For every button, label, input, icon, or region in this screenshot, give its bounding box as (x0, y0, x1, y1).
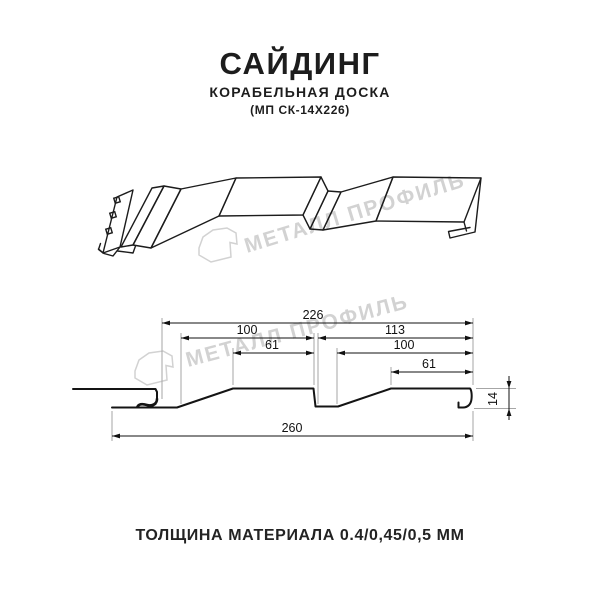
dim-label-100-left: 100 (237, 323, 258, 337)
dim-61-right: 61 (391, 357, 473, 374)
thickness-note: ТОЛЩИНА МАТЕРИАЛА 0.4/0,45/0,5 ММ (0, 527, 600, 545)
product-sheet: САЙДИНГ КОРАБЕЛЬНАЯ ДОСКА (МП СК-14Х226)… (0, 0, 600, 600)
brand-logo-icon (135, 351, 173, 385)
dim-260: 260 (112, 421, 473, 438)
dim-label-61-right: 61 (422, 357, 436, 371)
neighbor-panel-edge (73, 389, 157, 400)
dim-label-113: 113 (385, 323, 405, 337)
dim-label-226: 226 (303, 308, 324, 322)
watermark-text: МЕТАЛЛ ПРОФИЛЬ (183, 290, 411, 372)
dim-label-100-right: 100 (394, 338, 415, 352)
iso-right-fold-edge (464, 222, 467, 231)
brand-logo-icon (199, 228, 237, 262)
technical-drawing-canvas: МЕТАЛЛ ПРОФИЛЬ МЕТАЛЛ ПРОФИЛЬ (0, 0, 600, 600)
iso-slope1 (151, 178, 236, 248)
dim-226: 226 (162, 308, 473, 325)
watermark-text: МЕТАЛЛ ПРОФИЛЬ (242, 169, 468, 258)
profile-outline (112, 389, 472, 408)
dim-label-260: 260 (282, 421, 303, 435)
dim-label-14: 14 (486, 392, 500, 406)
dim-100-right: 100 (337, 338, 473, 355)
extension-lines (112, 318, 516, 441)
dim-label-61-left: 61 (265, 338, 279, 352)
iso-bottom-flat (133, 186, 181, 248)
dim-14: 14 (486, 376, 511, 420)
nail-strip (103, 190, 133, 253)
